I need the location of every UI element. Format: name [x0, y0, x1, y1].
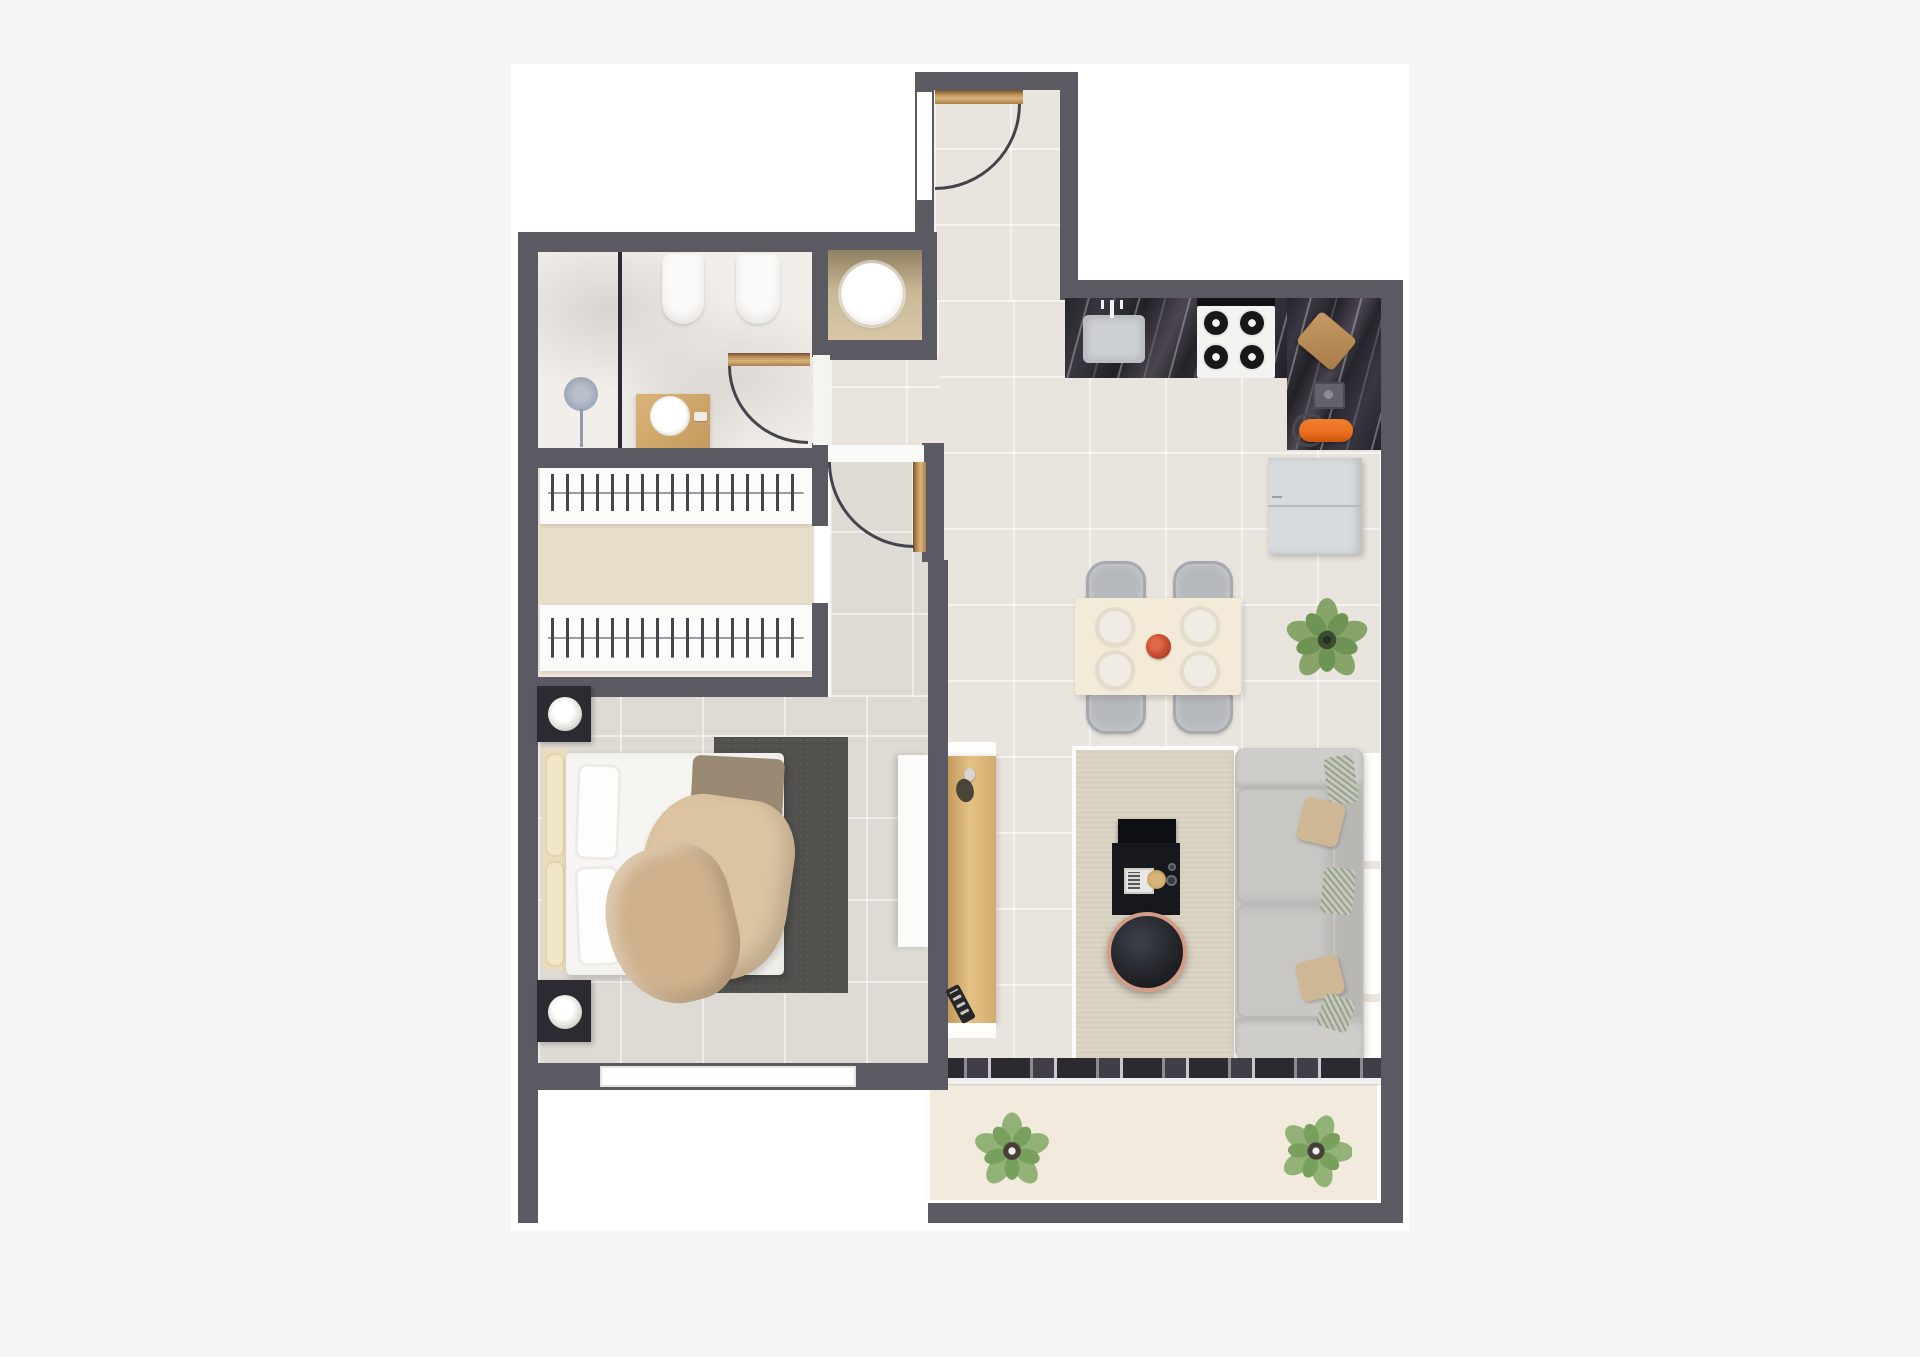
wall-closet-right-upper: [812, 468, 828, 526]
orange-utensil: [1299, 419, 1353, 442]
sofa-pillow-pattern-mid: [1320, 866, 1357, 915]
media-tray-book: [1128, 872, 1140, 889]
dining-chair-bottom-left: [1086, 692, 1146, 734]
media-knob-2: [1166, 875, 1177, 886]
sink-faucet: [1110, 300, 1114, 318]
balcony-plant-left: [975, 1110, 1049, 1192]
wall-kitchen-top: [1060, 280, 1403, 300]
wardrobe-rail-top: [540, 462, 812, 524]
nightstand-lamp-top: [548, 697, 582, 731]
bedroom-door-leaf: [913, 462, 926, 552]
bedroom-door-opening: [828, 445, 924, 462]
dinner-plate-4: [1180, 651, 1220, 691]
washing-machine: [841, 263, 903, 325]
dining-chair-top-left: [1086, 561, 1146, 603]
media-wood-disc: [1147, 870, 1166, 889]
centerpiece-bowl: [1146, 634, 1171, 659]
shower-head: [564, 377, 598, 411]
dinner-plate-2: [1180, 606, 1220, 646]
vanity-soap: [694, 412, 707, 421]
fridge-door-split: [1268, 505, 1362, 507]
closet-floor-strip: [538, 524, 814, 605]
bed-pillow-top: [574, 763, 621, 860]
wall-exterior-left: [518, 232, 538, 1090]
bedroom-window-sill: [600, 1066, 856, 1087]
bidet: [662, 254, 704, 324]
stove-burner-3: [1204, 345, 1228, 369]
sliding-door-threshold: [948, 1058, 1381, 1078]
fridge-handle: [1272, 496, 1282, 498]
stove-burner-4: [1240, 345, 1264, 369]
dinner-plate-1: [1095, 607, 1135, 647]
dining-chair-top-right: [1173, 561, 1233, 603]
entry-door-leaf: [935, 90, 1023, 104]
shower-glass-partition: [618, 252, 622, 448]
balcony-plant-right: [1280, 1110, 1352, 1192]
dining-chair-bottom-right: [1173, 692, 1233, 734]
media-knob-1: [1168, 863, 1176, 871]
wall-bathroom-bottom: [538, 448, 814, 468]
bathroom-door-leaf: [728, 353, 810, 366]
console-cap-top: [948, 742, 996, 757]
tv-screen: [1118, 819, 1176, 843]
plant-leaves: [1285, 598, 1369, 680]
shower-stem: [580, 409, 583, 447]
plant-leaves: [1280, 1112, 1352, 1189]
wall-entry-top: [915, 72, 1078, 90]
vanity-sink: [650, 396, 690, 436]
headboard-cushion-top: [545, 753, 565, 857]
wall-partition-bedroom-living: [928, 560, 948, 1090]
living-window-2: [1364, 869, 1381, 994]
bathroom-door-opening: [813, 355, 830, 445]
sliding-door-glass: [948, 1078, 1381, 1084]
headboard-cushion-bottom: [545, 861, 565, 967]
plant-leaves: [975, 1113, 1049, 1189]
stove-burner-1: [1204, 311, 1228, 335]
entry-door-frame: [917, 92, 932, 200]
stove-hood-strip: [1197, 298, 1275, 306]
sink-tap-left: [1101, 300, 1104, 309]
wall-balcony-bottom: [928, 1203, 1403, 1223]
dinner-plate-3: [1095, 650, 1135, 690]
stove-burner-2: [1240, 311, 1264, 335]
wall-left-spur: [518, 1090, 538, 1223]
wall-niche-bottom: [818, 338, 937, 360]
wall-exterior-right: [1381, 280, 1403, 1223]
living-window-3: [1364, 1002, 1381, 1058]
sink-tap-right: [1120, 300, 1123, 309]
sofa-pillow-pattern-top: [1323, 754, 1359, 806]
wall-entry-right: [1060, 72, 1078, 282]
console-cap-bottom: [948, 1023, 996, 1038]
potted-plant-dining: [1285, 592, 1369, 688]
nightstand-lamp-bottom: [548, 995, 582, 1029]
toilet: [736, 254, 780, 324]
wall-bathroom-top: [518, 232, 934, 252]
living-window-1: [1364, 753, 1381, 861]
wardrobe-rail-bottom: [540, 605, 812, 671]
kitchen-sink: [1083, 315, 1145, 363]
floor-plan-stage: [0, 0, 1920, 1357]
coffee-machine-button: [1324, 390, 1333, 399]
dresser: [898, 755, 928, 947]
round-coffee-table: [1107, 912, 1187, 992]
